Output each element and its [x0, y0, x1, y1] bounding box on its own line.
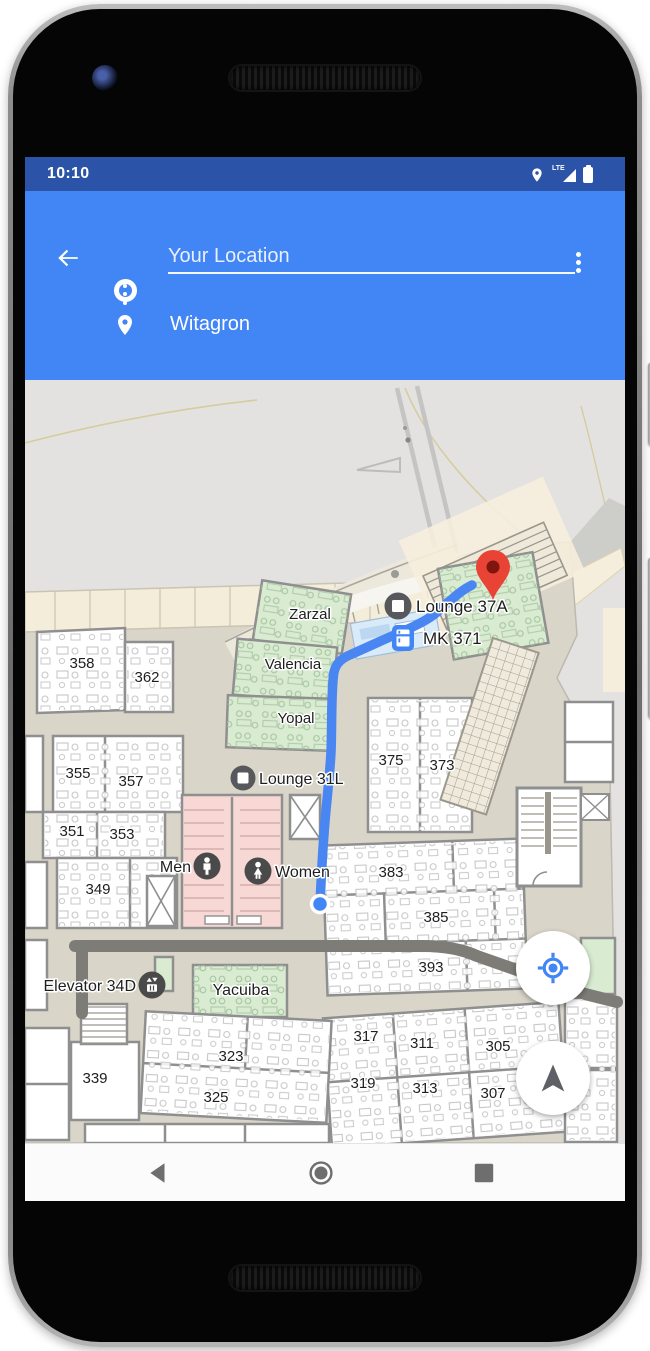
status-bar: 10:10 LTE [25, 157, 625, 191]
micro-kitchen-icon [392, 625, 414, 651]
room-label: 358 [69, 655, 94, 672]
route-dots-separator [123, 279, 128, 309]
room-label: 385 [423, 909, 448, 926]
directions-header: Your Location Witagron [25, 191, 625, 380]
room-label: 375 [378, 752, 403, 769]
my-location-button[interactable] [516, 931, 590, 1005]
room-label: 307 [480, 1085, 505, 1102]
room-label: 339 [82, 1070, 107, 1087]
room-label: 393 [418, 959, 443, 976]
room-label: Women [275, 864, 330, 881]
destination-pin-icon [113, 313, 137, 337]
room-label: 311 [410, 1035, 434, 1052]
room-label: 357 [118, 773, 143, 790]
nav-recents-button[interactable] [471, 1160, 497, 1186]
room-label: Yacuiba [213, 982, 270, 999]
origin-input[interactable]: Your Location [168, 245, 290, 268]
room-label: 317 [353, 1028, 378, 1045]
nav-back-button[interactable] [145, 1160, 171, 1186]
android-nav-bar [25, 1143, 625, 1201]
back-arrow-icon[interactable] [55, 245, 81, 271]
screen: 10:10 LTE [25, 157, 625, 1201]
room-label: Men [160, 859, 191, 876]
room-label: Valencia [265, 656, 322, 673]
room-label: 383 [378, 864, 403, 881]
battery-icon [583, 167, 593, 183]
room-label: Lounge 31L [259, 771, 344, 788]
screenshot: 10:10 LTE [0, 0, 650, 1351]
room-label: 319 [350, 1075, 375, 1092]
earpiece-speaker [230, 66, 420, 90]
compass-button[interactable] [516, 1041, 590, 1115]
bottom-speaker [230, 1266, 420, 1290]
men-restroom-icon [194, 853, 221, 880]
room-label: 305 [485, 1038, 510, 1055]
lounge-37a-icon [385, 593, 412, 620]
room-label: Lounge 37A [416, 597, 508, 616]
map-canvas[interactable]: Zarzal Valencia Yopal Lounge 37A MK 371 … [25, 380, 625, 1143]
location-on-icon [529, 167, 545, 183]
nav-home-button[interactable] [308, 1160, 334, 1186]
room-label: Yopal [278, 710, 315, 727]
indoor-map: Zarzal Valencia Yopal Lounge 37A MK 371 … [25, 380, 625, 1143]
room-label: 323 [218, 1048, 243, 1065]
origin-underline [168, 272, 575, 274]
signal-icon: LTE [552, 165, 576, 183]
elevator-icon [139, 972, 166, 999]
my-location-icon [537, 952, 569, 984]
room-label: 362 [134, 669, 159, 686]
room-label: MK 371 [423, 629, 482, 648]
destination-input[interactable]: Witagron [170, 313, 250, 336]
room-label: 349 [85, 881, 110, 898]
lounge-31l-icon [231, 766, 256, 791]
room-label: Zarzal [289, 606, 331, 623]
room-label: 325 [203, 1089, 228, 1106]
room-label: 313 [412, 1080, 437, 1097]
room-label: 355 [65, 765, 90, 782]
clock: 10:10 [47, 165, 89, 183]
room-label: 353 [109, 826, 134, 843]
room-label: 373 [429, 757, 454, 774]
front-camera-icon [92, 65, 118, 91]
navigation-arrow-icon [536, 1061, 570, 1095]
route-origin-dot [312, 896, 329, 913]
phone-frame: 10:10 LTE [8, 4, 642, 1347]
phone-bezel: 10:10 LTE [13, 9, 637, 1342]
women-restroom-icon [245, 858, 272, 885]
room-label: Elevator 34D [44, 978, 137, 995]
room-label: 351 [59, 823, 84, 840]
overflow-menu-button[interactable] [571, 244, 587, 281]
